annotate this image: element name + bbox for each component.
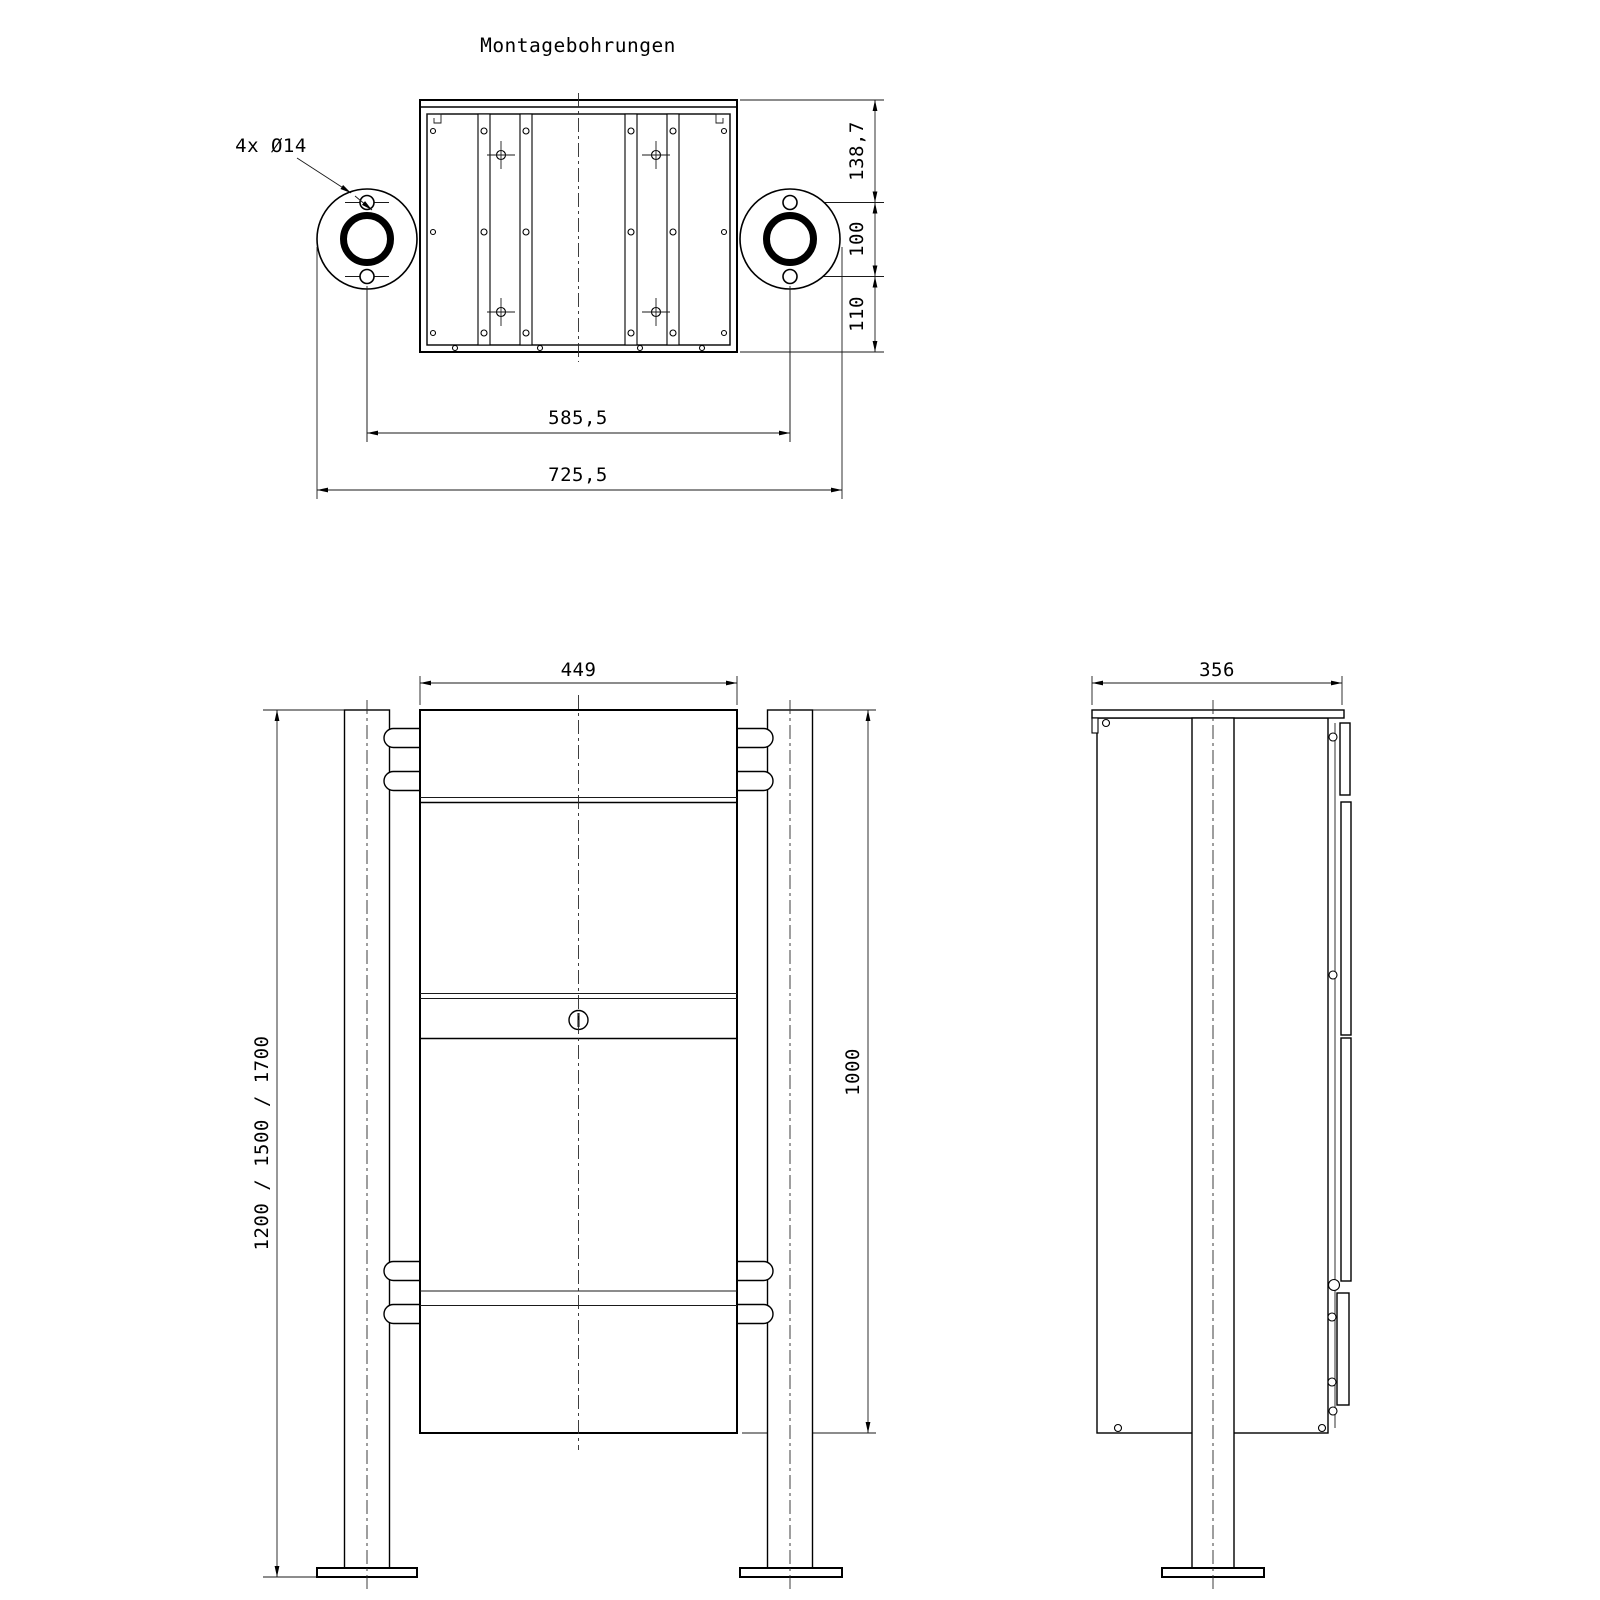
top-view-mailbox-body bbox=[420, 93, 737, 362]
flange-bolt-hole bbox=[360, 196, 374, 210]
flange-bolt-hole bbox=[783, 270, 797, 284]
drawing-title: Montagebohrungen bbox=[480, 34, 676, 57]
dim-label-box-height: 1000 bbox=[842, 1048, 864, 1096]
flange-bolt-hole bbox=[783, 196, 797, 210]
holes-callout-label: 4x Ø14 bbox=[235, 135, 307, 157]
dim-label-box-width: 449 bbox=[561, 659, 597, 681]
technical-drawing-page: Montagebohrungen 138,7 100 110 bbox=[0, 0, 1600, 1600]
dim-label-hole-spacing-vertical: 100 bbox=[846, 221, 868, 257]
right-foot-plate bbox=[740, 1568, 842, 1577]
dim-label-hole-spacing-horizontal: 585,5 bbox=[548, 407, 608, 429]
dim-label-depth: 356 bbox=[1199, 659, 1235, 681]
dim-label-top-offset: 138,7 bbox=[846, 121, 868, 181]
side-view: 356 bbox=[1092, 659, 1351, 1592]
mailbox-technical-drawing: Montagebohrungen 138,7 100 110 bbox=[0, 0, 1600, 1600]
top-view: Montagebohrungen 138,7 100 110 bbox=[235, 34, 884, 499]
dim-label-post-heights: 1200 / 1500 / 1700 bbox=[251, 1036, 273, 1251]
dim-label-overall-width: 725,5 bbox=[548, 464, 608, 486]
dim-label-bottom-offset: 110 bbox=[846, 296, 868, 332]
flange-bolt-hole bbox=[360, 270, 374, 284]
front-view: 449 bbox=[251, 659, 876, 1592]
